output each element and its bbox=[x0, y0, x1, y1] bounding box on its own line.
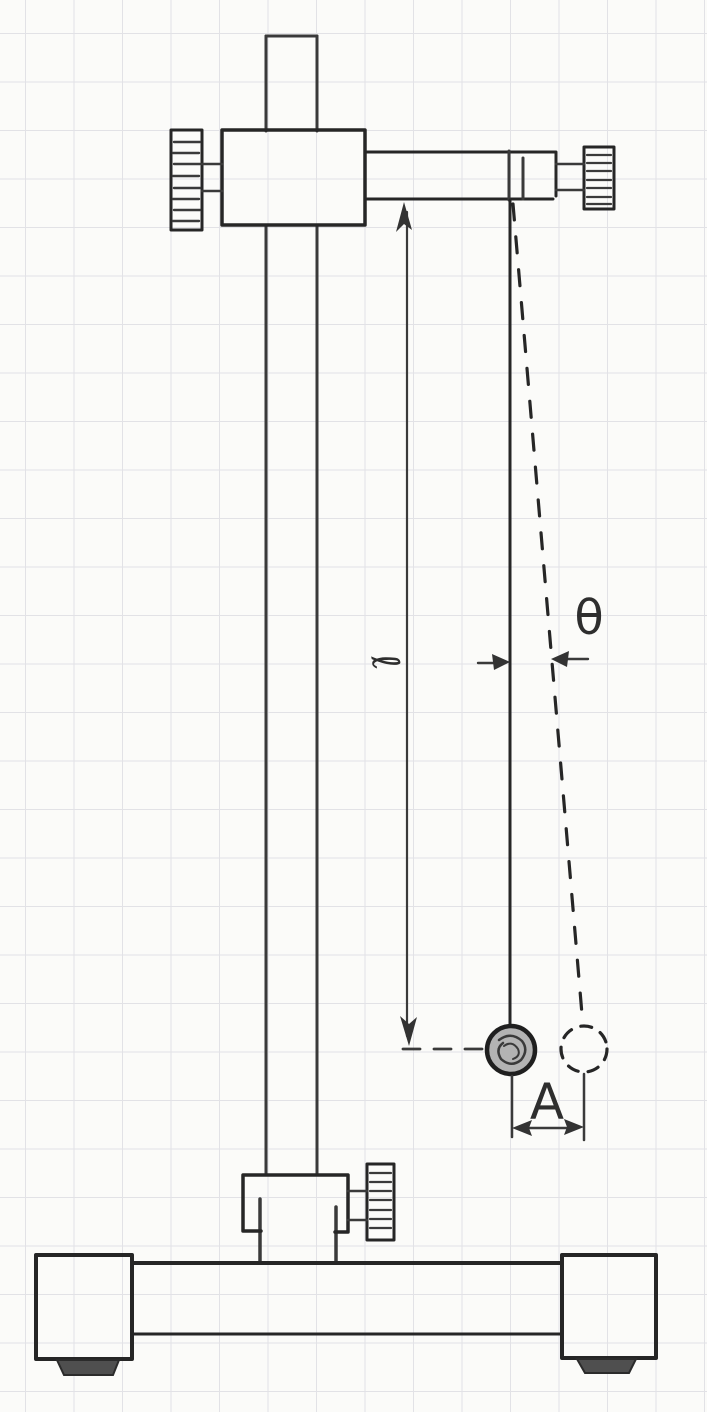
foot-pad-left bbox=[57, 1360, 119, 1375]
base-foot-right bbox=[562, 1255, 656, 1358]
string-clamp-lines bbox=[509, 151, 523, 200]
amplitude-dimension: A bbox=[512, 1073, 584, 1140]
lower-clamp bbox=[243, 1164, 394, 1240]
angle-annotation: θ bbox=[478, 590, 604, 670]
pendulum-string-displaced bbox=[513, 204, 583, 1026]
angle-label: θ bbox=[574, 590, 603, 646]
top-clamp-knob bbox=[171, 130, 202, 230]
arm-end-knob-knurling bbox=[587, 155, 611, 204]
arm-end-knob-shaft bbox=[556, 164, 584, 190]
pendulum-bob-displaced bbox=[561, 1026, 607, 1072]
arm-end-knob bbox=[584, 147, 614, 209]
top-clamp-knob-knurling bbox=[173, 142, 200, 221]
angle-arrow-right-head bbox=[492, 654, 510, 670]
length-label: ℓ bbox=[362, 649, 407, 674]
rod-main bbox=[266, 225, 317, 1175]
top-clamp-body bbox=[222, 130, 365, 225]
amplitude-arrow-head-right bbox=[564, 1119, 584, 1135]
base-foot-left bbox=[36, 1255, 132, 1359]
pendulum-apparatus-drawing: ℓ θ A bbox=[0, 0, 707, 1412]
lower-clamp-knob-shaft bbox=[348, 1191, 367, 1220]
length-arrow-head-up bbox=[396, 202, 412, 232]
top-clamp bbox=[171, 130, 365, 230]
rod-above-clamp bbox=[266, 36, 317, 131]
top-clamp-knob-shaft bbox=[202, 164, 222, 191]
lower-clamp-knob-knurling bbox=[370, 1173, 391, 1228]
pendulum-bob-circle bbox=[487, 1026, 535, 1074]
pendulum-bob bbox=[487, 1026, 535, 1074]
graph-paper: ℓ θ A bbox=[0, 0, 707, 1412]
rod-lower-legs bbox=[260, 1199, 336, 1262]
foot-pad-right bbox=[577, 1359, 636, 1373]
amplitude-label: A bbox=[530, 1073, 564, 1131]
pendulum-arm bbox=[365, 147, 614, 209]
arm-outline bbox=[365, 152, 556, 199]
stand-base bbox=[36, 1255, 656, 1375]
length-arrow-head-down bbox=[400, 1016, 417, 1046]
length-dimension: ℓ bbox=[362, 202, 489, 1049]
stand-rod bbox=[260, 36, 336, 1262]
